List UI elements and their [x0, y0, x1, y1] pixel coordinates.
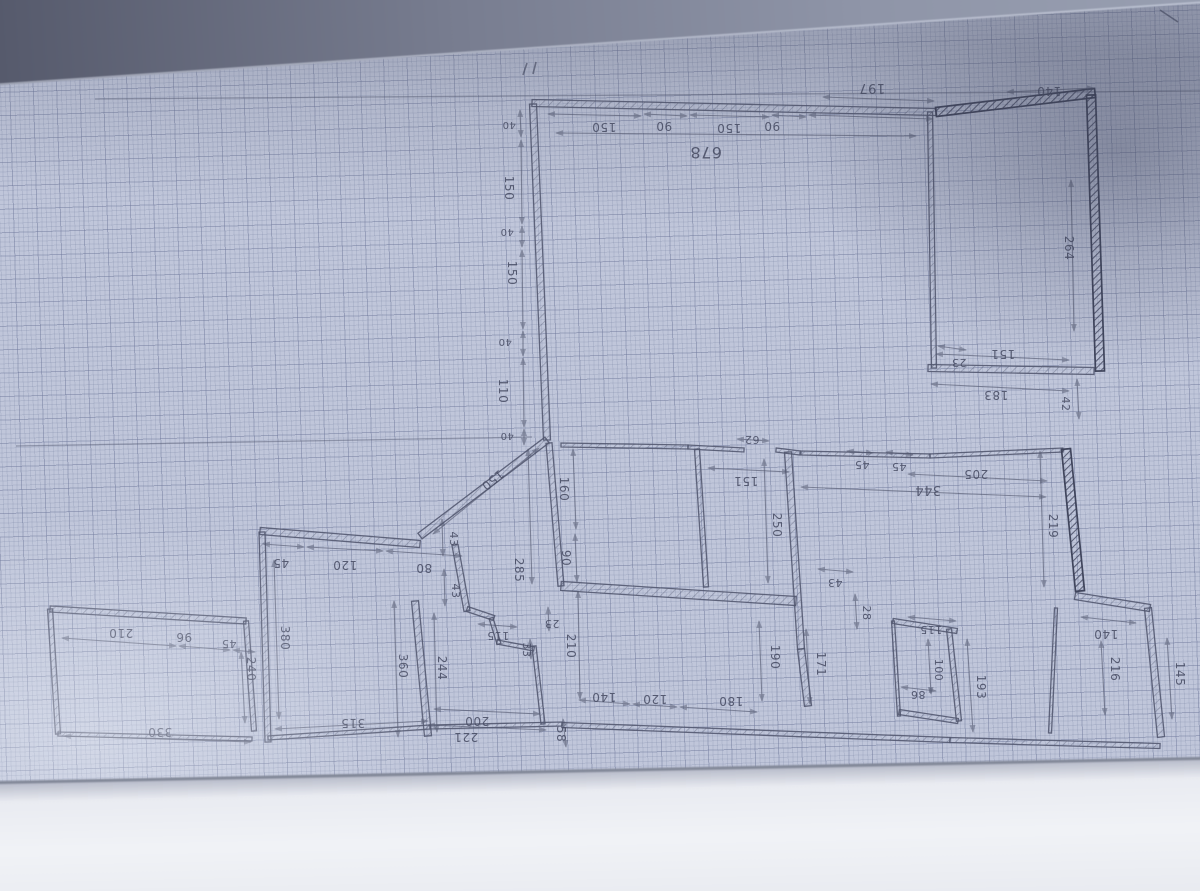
- wall-segment: [947, 629, 962, 722]
- wall-segment: [50, 606, 246, 624]
- dimension-line: [386, 551, 462, 556]
- dimension-label: 150: [505, 261, 519, 285]
- wall-segment: [1049, 608, 1058, 733]
- dimension-label: 33: [520, 643, 533, 658]
- dimension-label: 62: [745, 433, 760, 446]
- wall-segment: [561, 582, 797, 606]
- dimension-label: 197: [859, 80, 885, 95]
- dimension-label: 120: [333, 558, 357, 572]
- dimension-label: 330: [148, 725, 172, 739]
- dimension-label: 221: [454, 730, 478, 744]
- dimension-line: [818, 569, 853, 572]
- dimension-line: [823, 97, 934, 101]
- dimension-label: 210: [564, 634, 578, 658]
- pencil-guide-lines: [16, 91, 1200, 446]
- dimension-label: 90: [559, 550, 573, 566]
- dimension-label: 151: [991, 347, 1015, 361]
- dimension-label: 151: [734, 474, 758, 488]
- dimension-line: [444, 569, 445, 606]
- dimension-line: [442, 519, 443, 556]
- dimension-label: 244: [435, 656, 449, 680]
- wall-segment: [530, 104, 551, 440]
- dimension-line: [573, 449, 576, 529]
- dimension-line: [1040, 451, 1044, 587]
- dimension-label: 678: [690, 143, 722, 162]
- dimension-label: 45: [273, 556, 289, 570]
- dimension-label: 380: [278, 626, 292, 650]
- dimension-line: [434, 709, 540, 714]
- guide-line: [16, 437, 532, 446]
- wall-segment: [260, 528, 421, 548]
- dimension-label: 360: [396, 654, 410, 678]
- floor-plan-drawing: 6781509015090197140401504015040110401501…: [0, 0, 1200, 891]
- dimension-label: 150: [502, 176, 516, 200]
- dimension-line: [548, 114, 641, 116]
- dimension-label: 183: [984, 388, 1008, 402]
- dimension-label: 150: [717, 121, 741, 135]
- floor-plan-photo: 6781509015090197140401504015040110401501…: [0, 0, 1200, 891]
- wall-segment: [1145, 608, 1165, 738]
- dimension-label: 45: [892, 460, 907, 473]
- dimension-label: 145: [1173, 662, 1187, 686]
- dimension-line: [1101, 641, 1105, 715]
- dimension-line: [1081, 617, 1136, 623]
- dimension-label: 205: [964, 467, 988, 481]
- dimension-label: 344: [915, 482, 941, 497]
- dimension-label: 200: [465, 714, 489, 728]
- wall-segment: [452, 545, 470, 612]
- dimension-label: 90: [656, 119, 672, 133]
- dimension-label: 115: [920, 623, 943, 636]
- dimension-line: [575, 534, 577, 582]
- dimension-line: [708, 468, 789, 472]
- dimension-line: [680, 707, 757, 712]
- dimension-label: 140: [1094, 627, 1118, 641]
- dimension-line: [938, 346, 966, 350]
- dimension-label: 171: [814, 652, 828, 676]
- pencil-mark: [533, 62, 536, 74]
- wall-segment: [930, 448, 1063, 458]
- dimension-label: 80: [416, 561, 432, 575]
- dimension-line: [759, 621, 762, 701]
- dimension-label: 28: [860, 606, 873, 621]
- dimension-label: 96: [176, 630, 192, 644]
- dimension-label-layer: 6781509015090197140401504015040110401501…: [109, 80, 1187, 744]
- wall-segment: [899, 710, 959, 724]
- dimension-label: 190: [768, 645, 782, 669]
- wall-segment: [412, 601, 432, 737]
- dimension-label: 45: [855, 458, 870, 471]
- desk-surface-bottom-band: [0, 756, 1200, 891]
- dimension-label: 100: [932, 659, 945, 682]
- dimension-label: 23: [545, 617, 560, 630]
- wall-layer: [48, 89, 1165, 749]
- dimension-line: [307, 547, 383, 551]
- wall-segment: [561, 443, 688, 449]
- dimension-line: [644, 114, 687, 116]
- wall-segment: [259, 532, 271, 742]
- wall-segment: [1062, 449, 1085, 592]
- dimension-line: [522, 250, 523, 329]
- dimension-label: 140: [1037, 84, 1061, 98]
- dimension-line: [520, 110, 521, 137]
- dimension-label: 43: [449, 584, 462, 599]
- dimension-line: [967, 639, 973, 732]
- wall-segment: [1087, 95, 1105, 371]
- wall-segment: [928, 112, 937, 368]
- wall-segment: [892, 621, 901, 716]
- dimension-label: 193: [974, 675, 988, 699]
- wall-segment: [695, 449, 709, 587]
- dimension-label: 140: [592, 690, 616, 704]
- dimension-line: [772, 115, 806, 117]
- dimension-line: [523, 358, 524, 427]
- dimension-label: 58: [554, 726, 568, 742]
- dimension-label: 43: [828, 576, 843, 589]
- pencil-mark: [1160, 10, 1178, 22]
- dimension-label: 23: [952, 356, 967, 369]
- dimension-label: 43: [447, 532, 460, 547]
- dimension-label: 42: [1059, 397, 1072, 412]
- dimension-label: 219: [1046, 514, 1060, 538]
- dimension-line: [1167, 638, 1172, 719]
- dimension-label: 250: [770, 513, 784, 537]
- dimension-label: 180: [719, 694, 743, 708]
- dimension-line: [478, 624, 517, 627]
- dimension-line: [928, 639, 931, 694]
- dimension-label: 90: [764, 119, 780, 133]
- dimension-label: 240: [244, 657, 258, 681]
- wall-segment: [48, 609, 61, 734]
- dimension-line: [908, 617, 956, 621]
- wall-segment: [532, 646, 545, 724]
- dimension-label: 210: [109, 626, 133, 640]
- dimension-label: 285: [512, 558, 526, 582]
- wall-segment: [785, 452, 805, 649]
- dimension-label: 120: [643, 692, 667, 706]
- dimension-label: 45: [222, 637, 237, 650]
- dimension-label: 150: [592, 120, 616, 134]
- dimension-line: [690, 115, 769, 117]
- dimension-line: [263, 544, 304, 547]
- dimension-label: 86: [911, 688, 926, 701]
- wall-segment: [1074, 593, 1150, 612]
- dimension-label: 315: [341, 716, 365, 730]
- dimension-label: 40: [498, 336, 512, 347]
- dimension-label: 40: [500, 226, 514, 237]
- dimension-label: 264: [1062, 236, 1076, 260]
- dimension-line: [521, 140, 522, 224]
- dimension-label: 40: [502, 119, 516, 130]
- wall-segment: [532, 100, 936, 116]
- wall-segment: [562, 723, 950, 743]
- dimension-line: [528, 449, 532, 584]
- dimension-label: 40: [500, 430, 514, 441]
- dimension-line: [855, 594, 857, 629]
- dimension-label: 216: [1108, 657, 1122, 681]
- dimension-label: 160: [557, 477, 571, 501]
- dimension-line: [1077, 379, 1079, 419]
- dimension-label: 115: [487, 629, 510, 642]
- wall-segment: [950, 738, 1160, 749]
- dimension-label: 110: [496, 379, 510, 403]
- pencil-mark: [523, 63, 527, 75]
- dimension-line: [764, 459, 768, 583]
